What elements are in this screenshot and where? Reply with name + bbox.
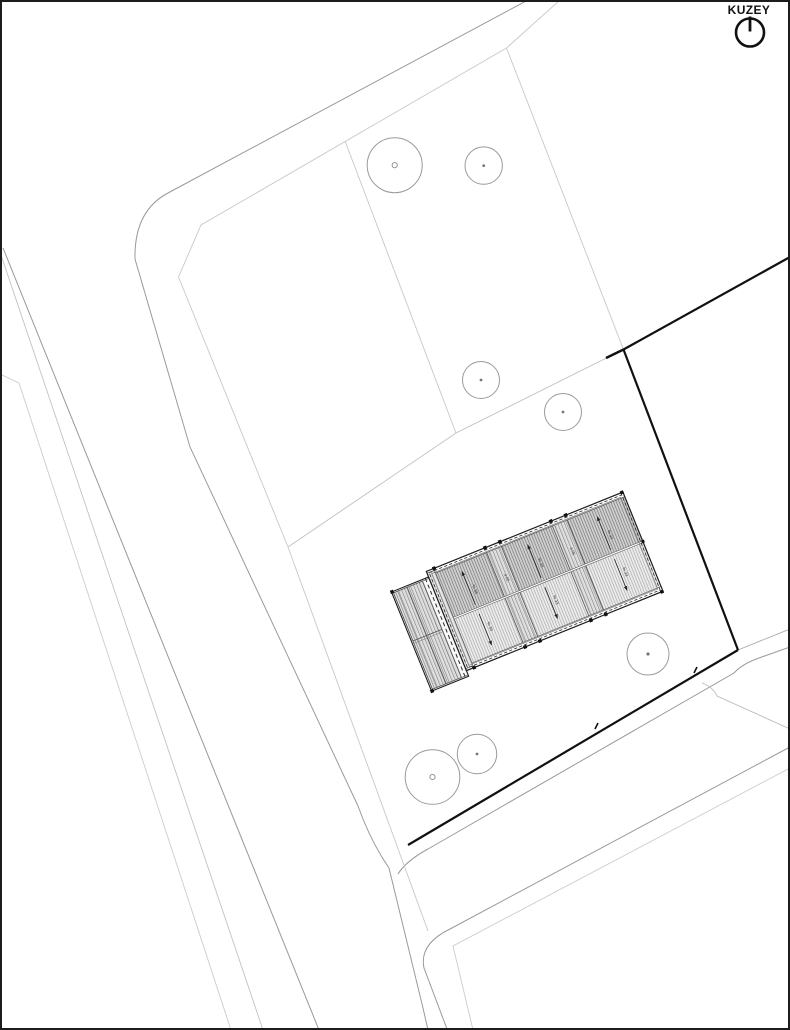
svg-text:KUZEY: KUZEY	[728, 3, 771, 17]
